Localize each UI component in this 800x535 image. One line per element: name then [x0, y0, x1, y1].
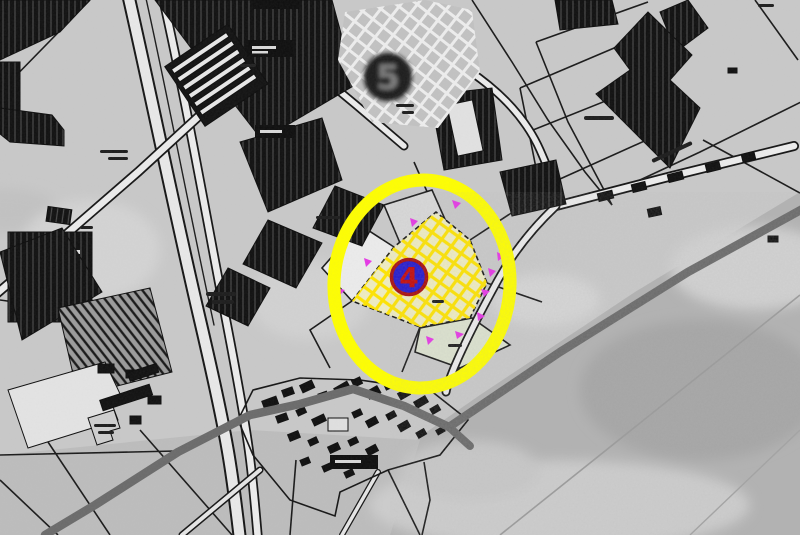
map-canvas[interactable]: 5 4 — [0, 0, 800, 535]
map-viewport[interactable]: 5 4 — [0, 0, 800, 535]
